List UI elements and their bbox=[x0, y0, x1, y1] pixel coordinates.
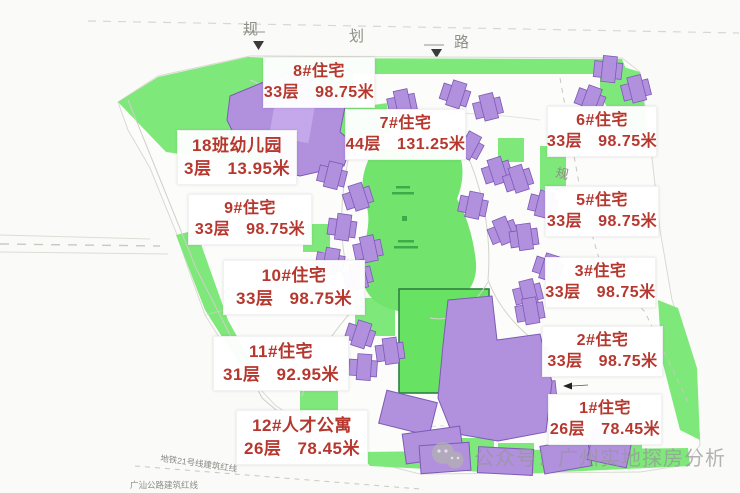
building-height: 98.75米 bbox=[597, 282, 656, 303]
building-height: 92.95米 bbox=[276, 363, 339, 386]
building-name: 12#人才公寓 bbox=[239, 414, 365, 437]
building-floors: 33层 bbox=[547, 351, 582, 372]
building-floors: 31层 bbox=[223, 363, 260, 386]
building-name: 2#住宅 bbox=[545, 330, 660, 351]
label-building-9: 9#住宅 33层98.75米 bbox=[188, 194, 312, 245]
building-name: 1#住宅 bbox=[551, 398, 659, 419]
building-height: 78.45米 bbox=[297, 437, 360, 460]
building-name: 10#住宅 bbox=[226, 264, 362, 287]
label-kindergarten: 18班幼儿园 3层13.95米 bbox=[177, 130, 297, 185]
label-building-2: 2#住宅 33层98.75米 bbox=[542, 326, 663, 377]
road-label-char: 路 bbox=[454, 34, 469, 51]
building-name: 11#住宅 bbox=[216, 340, 346, 363]
building-height: 98.75米 bbox=[598, 211, 657, 232]
building-floors: 33层 bbox=[236, 287, 273, 310]
label-building-5: 5#住宅 33层98.75米 bbox=[545, 186, 659, 237]
building-floors: 26层 bbox=[550, 419, 585, 440]
building-height: 13.95米 bbox=[227, 157, 290, 180]
building-height: 131.25米 bbox=[397, 134, 465, 155]
building-height: 78.45米 bbox=[601, 419, 660, 440]
label-building-8: 8#住宅 33层98.75米 bbox=[263, 57, 375, 108]
building-height: 98.75米 bbox=[289, 287, 352, 310]
label-building-6: 6#住宅 33层98.75米 bbox=[547, 106, 657, 157]
building-floors: 33层 bbox=[547, 211, 582, 232]
building-name: 6#住宅 bbox=[550, 110, 654, 131]
building-name: 7#住宅 bbox=[348, 113, 463, 134]
building-floors: 44层 bbox=[346, 134, 381, 155]
building-name: 5#住宅 bbox=[548, 190, 656, 211]
building-height: 98.75米 bbox=[246, 219, 305, 240]
building-name: 3#住宅 bbox=[548, 261, 653, 282]
label-building-11: 11#住宅 31层92.95米 bbox=[213, 336, 349, 391]
building-height: 98.75米 bbox=[599, 351, 658, 372]
building-name: 18班幼儿园 bbox=[180, 134, 294, 157]
label-building-7: 7#住宅 44层131.25米 bbox=[345, 109, 466, 160]
building-height: 98.75米 bbox=[315, 82, 374, 103]
building-name: 9#住宅 bbox=[191, 198, 309, 219]
label-building-3: 3#住宅 33层98.75米 bbox=[545, 257, 656, 308]
building-name: 8#住宅 bbox=[266, 61, 372, 82]
road-label-char: 规 bbox=[243, 21, 258, 38]
highway-redline-note: 广汕公路建筑红线 bbox=[130, 480, 199, 490]
road-label-char: 划 bbox=[349, 28, 364, 45]
building-floors: 33层 bbox=[195, 219, 230, 240]
building-floors: 33层 bbox=[264, 82, 299, 103]
label-building-1: 1#住宅 26层78.45米 bbox=[548, 394, 662, 445]
building-floors: 26层 bbox=[244, 437, 281, 460]
label-building-12: 12#人才公寓 26层78.45米 bbox=[236, 410, 368, 465]
building-floors: 3层 bbox=[184, 157, 211, 180]
central-garden bbox=[362, 147, 477, 311]
site-plan-screenshot: 规 划 路 规 地铁21号线建筑红线 广汕公路建筑红线 8#住宅 33层98.7… bbox=[0, 0, 740, 493]
label-building-10: 10#住宅 33层98.75米 bbox=[223, 260, 365, 315]
building-floors: 33层 bbox=[545, 282, 580, 303]
building-height: 98.75米 bbox=[598, 131, 657, 152]
building-floors: 33层 bbox=[547, 131, 582, 152]
